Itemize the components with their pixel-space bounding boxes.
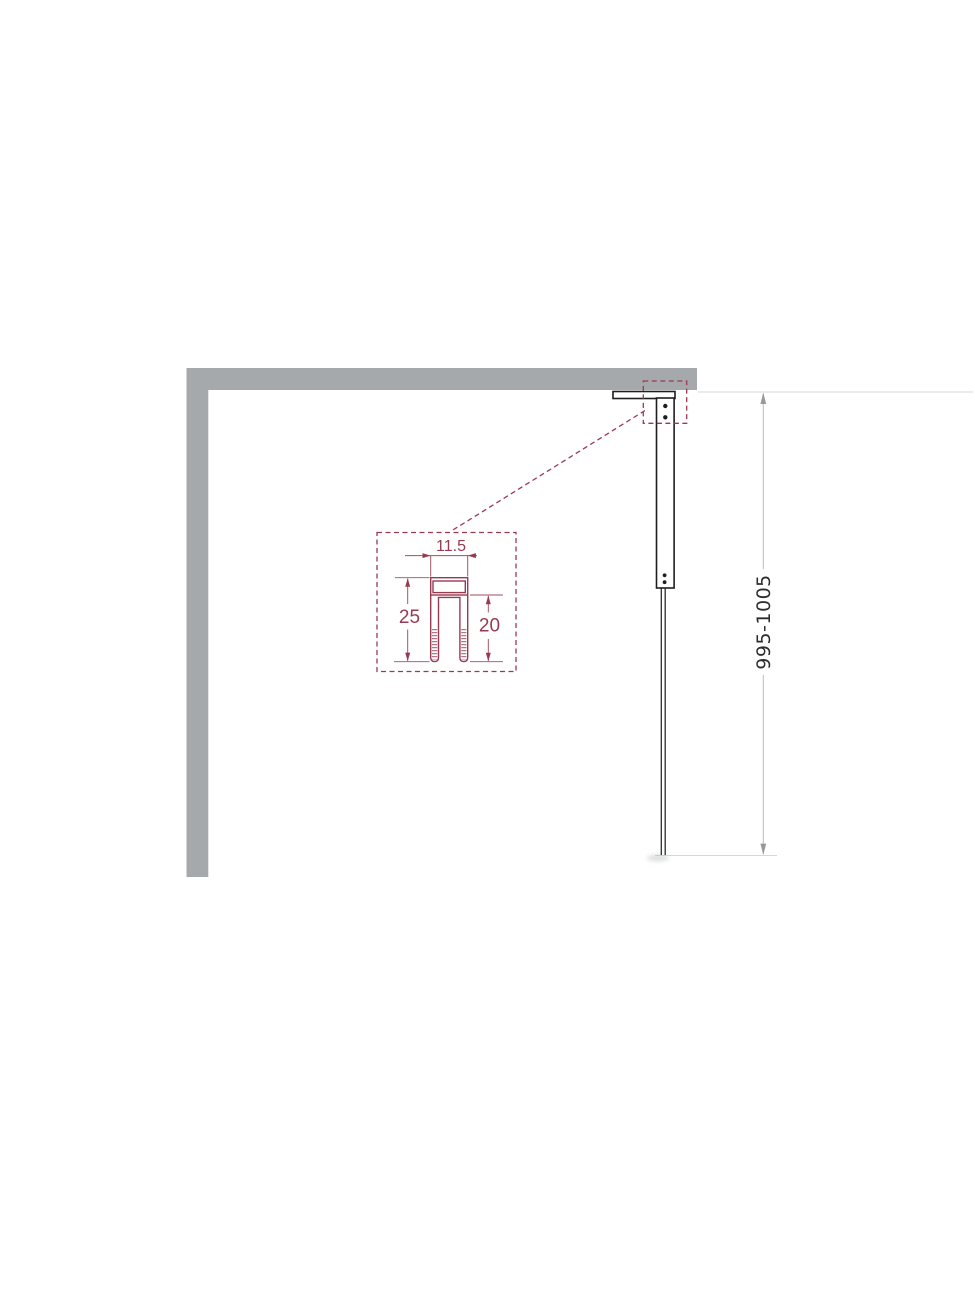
glass-panel: [647, 588, 669, 861]
detail-profile-cross-section: [431, 578, 468, 662]
dim-profile-inner-height: 20: [470, 595, 503, 662]
wall-profile-bar: [657, 398, 675, 588]
dim-profile-width-label: 11.5: [436, 538, 466, 555]
installation-diagram: 11.5 25 20 995-1005: [0, 0, 975, 1300]
dim-profile-height-label: 25: [399, 607, 420, 628]
detail-profile-legs: [431, 595, 468, 662]
dim-installation-height: 995-1005: [753, 393, 775, 855]
screw-hole: [663, 415, 667, 419]
glass-bottom-shadow: [647, 855, 669, 861]
detail-profile-head-slot: [433, 581, 465, 593]
screw-hole: [663, 404, 667, 408]
dim-profile-height: 25: [394, 578, 430, 662]
wall-left: [187, 368, 209, 877]
dim-installation-height-label: 995-1005: [753, 574, 775, 669]
dim-profile-width: 11.5: [405, 538, 477, 577]
wall-top: [187, 368, 698, 390]
technical-drawing-canvas: 11.5 25 20 995-1005: [0, 0, 975, 1300]
screw-hole: [663, 580, 667, 584]
callout-leader-line: [451, 411, 646, 532]
screw-hole: [663, 573, 667, 577]
dim-profile-inner-height-label: 20: [479, 616, 500, 637]
